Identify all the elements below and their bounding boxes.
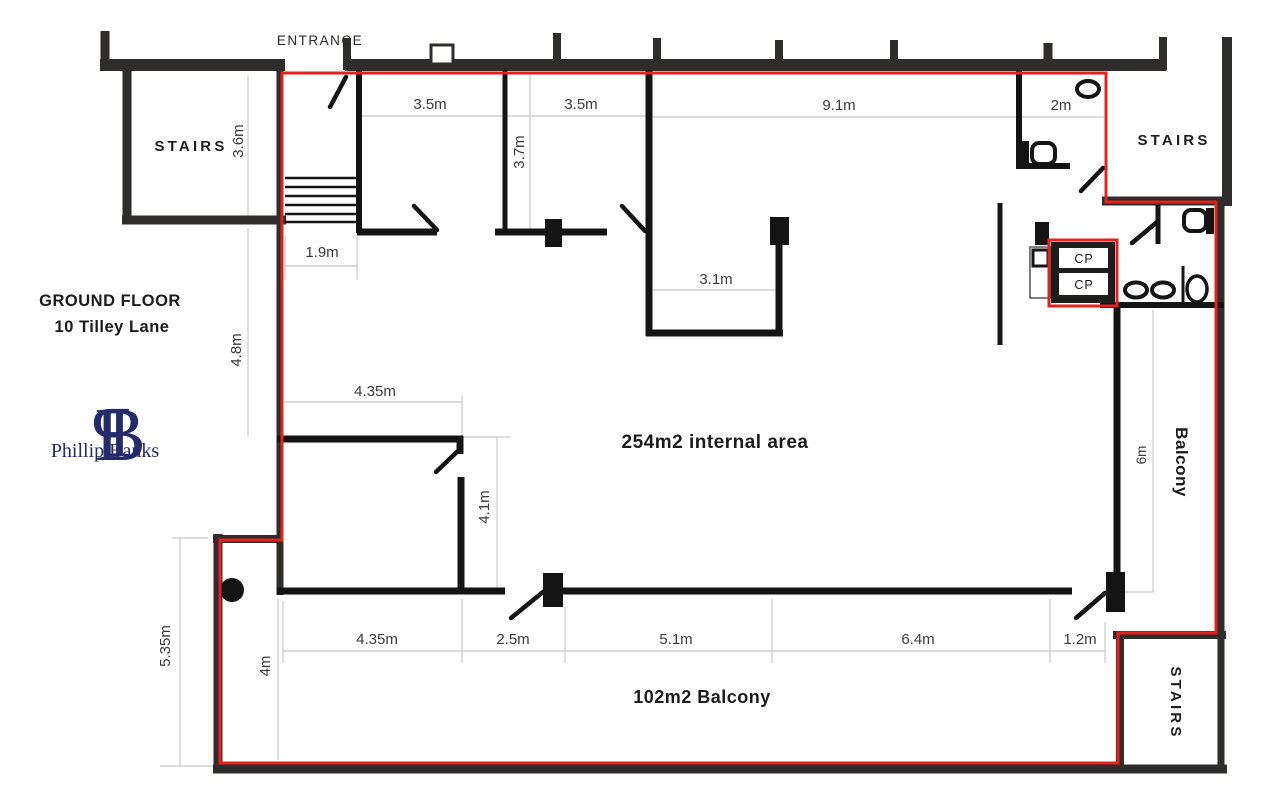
internal-area-label: 254m2 internal area [622, 432, 809, 453]
cupboard-unit: CP CP [1049, 240, 1117, 306]
dim-label: 9.1m [822, 97, 855, 114]
address-title: 10 Tilley Lane [55, 318, 170, 336]
dim-label: 4m [257, 656, 274, 677]
stairs-top-right-label: STAIRS [1137, 132, 1210, 149]
dim-label: 1.9m [305, 244, 338, 261]
stairs-bottom-right-label: STAIRS [1167, 666, 1184, 739]
dim-label: 5.35m [157, 625, 174, 667]
door-swing [436, 451, 458, 472]
door-swing [1132, 222, 1157, 243]
toilet-icon [1032, 143, 1055, 164]
dim-label: 3.5m [564, 96, 597, 113]
floor-title: GROUND FLOOR [39, 292, 181, 310]
floor-plan-drawing: CP CP ENTRANCE STAIRS STAIRS STAIRS Balc… [0, 0, 1280, 812]
dim-label: 2m [1051, 97, 1072, 114]
dim-label: 3.1m [699, 271, 732, 288]
floor-plan-page: CP CP ENTRANCE STAIRS STAIRS STAIRS Balc… [0, 0, 1280, 812]
dim-label: 4.1m [476, 490, 493, 523]
dim-label: 4.35m [356, 631, 398, 648]
dim-label: 3.6m [230, 124, 247, 157]
dim-label: 4.8m [228, 333, 245, 366]
pillar [543, 573, 563, 607]
door-swing [414, 206, 437, 230]
door-swing [511, 592, 543, 618]
stairs-top-left-label: STAIRS [154, 138, 227, 155]
door-swing [1081, 168, 1103, 191]
balcony-side-label: Balcony [1172, 427, 1191, 497]
logo-name: Phillip Banks [51, 440, 160, 462]
basin-icon [1125, 283, 1147, 298]
column [220, 578, 244, 602]
cupboard-label-top: CP [1074, 252, 1093, 266]
logo-monogram-b: B [95, 393, 146, 477]
toilet-cistern-icon [1206, 208, 1214, 234]
basin-icon [1152, 283, 1174, 298]
door-swing-entrance [330, 77, 346, 107]
dim-label: 4.35m [354, 383, 396, 400]
pillar [1106, 572, 1125, 612]
vent-square [431, 45, 453, 64]
interior-walls [220, 70, 1224, 612]
dim-label: 2.5m [496, 631, 529, 648]
pillar [770, 217, 789, 245]
dim-label: 5.1m [659, 631, 692, 648]
entrance-label: ENTRANCE [277, 33, 363, 48]
sink-square-icon [1033, 250, 1048, 266]
door-swing [622, 206, 645, 231]
cupboard-label-bottom: CP [1074, 278, 1093, 292]
boundary-outline [220, 73, 1216, 763]
logo: P B Phillip Banks [51, 392, 160, 477]
door-swing [1076, 593, 1105, 618]
dim-label: 6.4m [901, 631, 934, 648]
title-block: GROUND FLOOR 10 Tilley Lane [39, 292, 181, 336]
basin-icon [1077, 81, 1099, 97]
dim-label: 3.7m [511, 135, 528, 168]
dim-label: 6m [1134, 446, 1149, 465]
toilet-cistern-icon [1021, 141, 1029, 167]
toilet-icon [1184, 210, 1206, 231]
balcony-area-label: 102m2 Balcony [633, 687, 771, 707]
stair-treads [285, 178, 357, 222]
unit-block [1035, 222, 1049, 245]
pillar [545, 219, 562, 247]
dim-label: 1.2m [1063, 631, 1096, 648]
basin-icon [1187, 276, 1207, 302]
dim-label: 3.5m [413, 96, 446, 113]
